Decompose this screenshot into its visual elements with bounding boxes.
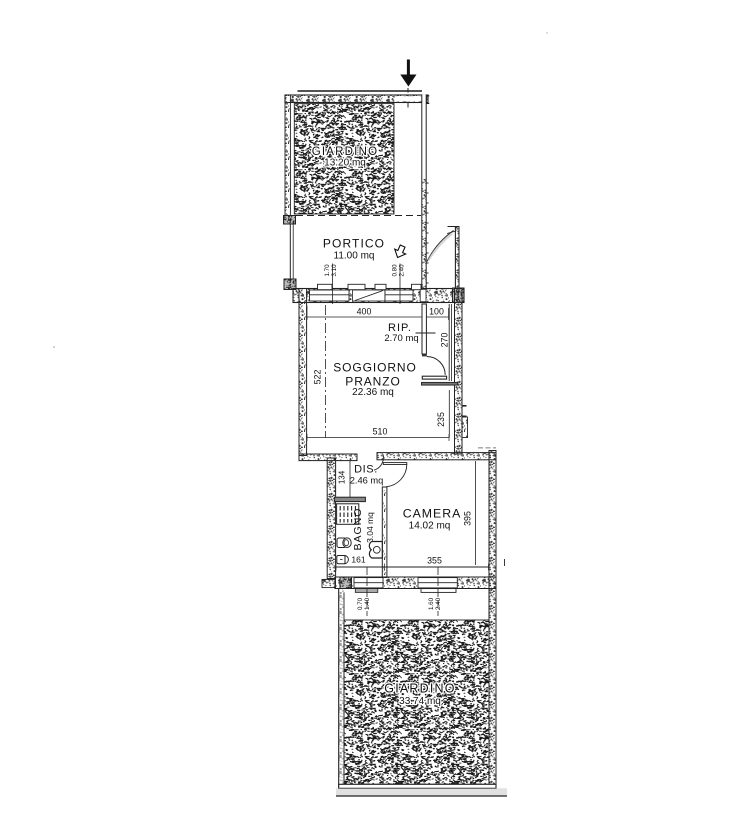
- svg-text:33.74 mq: 33.74 mq: [399, 696, 441, 707]
- svg-text:PORTICO: PORTICO: [323, 237, 385, 251]
- svg-text:100: 100: [429, 307, 444, 317]
- svg-text:2.46 mq: 2.46 mq: [350, 476, 384, 486]
- svg-text:134: 134: [338, 470, 347, 484]
- svg-text:GIARDINO: GIARDINO: [384, 682, 455, 696]
- svg-text:14.02 mq: 14.02 mq: [409, 521, 451, 532]
- svg-text:2.40: 2.40: [435, 597, 442, 610]
- svg-text:CAMERA: CAMERA: [403, 507, 462, 521]
- svg-text:510: 510: [373, 427, 388, 437]
- svg-text:235: 235: [436, 412, 446, 427]
- svg-text:SOGGIORNO: SOGGIORNO: [333, 361, 416, 375]
- svg-text:1.70: 1.70: [324, 264, 331, 277]
- svg-text:22.36 mq: 22.36 mq: [352, 387, 394, 398]
- svg-text:3.04 mq: 3.04 mq: [365, 512, 375, 543]
- svg-text:BAGNO: BAGNO: [352, 508, 364, 551]
- svg-text:0.70: 0.70: [357, 597, 364, 610]
- svg-text:11.00 mq: 11.00 mq: [334, 251, 375, 262]
- svg-text:270: 270: [440, 333, 450, 348]
- svg-text:13.20 mq: 13.20 mq: [324, 158, 366, 169]
- svg-text:3.10: 3.10: [331, 264, 338, 277]
- svg-text:2.40: 2.40: [399, 264, 406, 277]
- svg-text:522: 522: [313, 370, 323, 385]
- svg-text:395: 395: [463, 511, 473, 526]
- svg-text:DIS.: DIS.: [354, 464, 378, 476]
- svg-text:355: 355: [427, 556, 442, 566]
- svg-text:GIARDINO: GIARDINO: [312, 146, 378, 158]
- svg-text:400: 400: [357, 307, 372, 317]
- svg-text:1.60: 1.60: [428, 597, 435, 610]
- svg-text:161: 161: [351, 555, 365, 565]
- svg-text:0.80: 0.80: [392, 264, 399, 277]
- svg-text:1.40: 1.40: [364, 597, 371, 610]
- svg-text:2.70 mq: 2.70 mq: [384, 333, 418, 344]
